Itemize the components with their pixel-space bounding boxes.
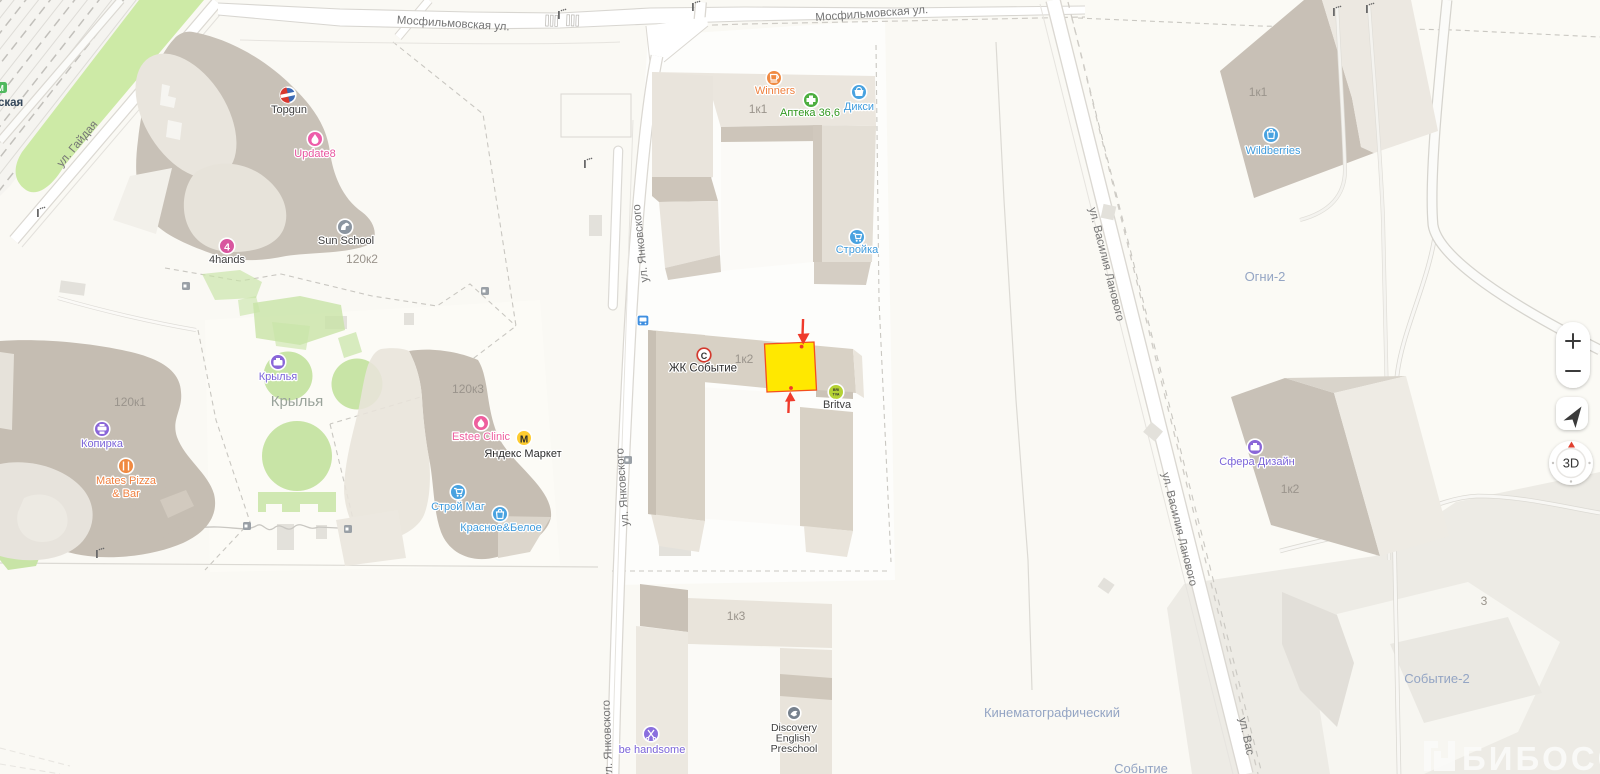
- svg-text:С: С: [701, 351, 708, 361]
- svg-text:Копирка: Копирка: [81, 438, 124, 450]
- svg-text:Кинематографический: Кинематографический: [984, 705, 1120, 720]
- svg-text:Строй Маг: Строй Маг: [431, 501, 485, 513]
- svg-text:3D: 3D: [1563, 456, 1580, 471]
- svg-text:Стройка: Стройка: [836, 244, 879, 256]
- svg-text:4: 4: [224, 242, 230, 254]
- svg-text:1к2: 1к2: [735, 352, 754, 366]
- svg-text:120к3: 120к3: [452, 382, 484, 396]
- svg-text:M: M: [0, 84, 4, 93]
- svg-text:Огни-2: Огни-2: [1245, 269, 1286, 284]
- svg-text:1к1: 1к1: [1249, 85, 1268, 99]
- svg-text:120к2: 120к2: [346, 252, 378, 266]
- svg-text:Britva: Britva: [823, 399, 852, 411]
- svg-text:Событие-2: Событие-2: [1404, 671, 1469, 686]
- svg-text:Winners: Winners: [755, 85, 796, 97]
- svg-text:1к1: 1к1: [749, 102, 768, 116]
- svg-text:1к2: 1к2: [1281, 482, 1300, 496]
- svg-text:Wildberries: Wildberries: [1245, 145, 1301, 157]
- svg-text:Sun School: Sun School: [318, 235, 374, 247]
- svg-text:Крылья: Крылья: [271, 393, 324, 410]
- svg-text:ская: ская: [0, 97, 23, 109]
- svg-text:Сфера Дизайн: Сфера Дизайн: [1219, 456, 1294, 468]
- svg-text:Крылья: Крылья: [259, 371, 298, 383]
- svg-text:Preschool: Preschool: [771, 743, 818, 755]
- svg-text:TVA: TVA: [833, 392, 840, 396]
- svg-text:3: 3: [1481, 594, 1488, 608]
- svg-text:4hands: 4hands: [209, 254, 246, 266]
- svg-text:Mates Pizza: Mates Pizza: [96, 475, 157, 487]
- svg-text:Аптека 36,6: Аптека 36,6: [780, 107, 840, 119]
- svg-text:Дикси: Дикси: [844, 101, 874, 113]
- svg-text:be handsome: be handsome: [619, 744, 686, 756]
- svg-text:& Bar: & Bar: [112, 488, 140, 500]
- svg-text:Update8: Update8: [294, 148, 336, 160]
- svg-text:1к3: 1к3: [727, 609, 746, 623]
- svg-text:Событие: Событие: [1114, 761, 1168, 774]
- svg-text:Яндекс Маркет: Яндекс Маркет: [484, 448, 561, 460]
- svg-text:BRI: BRI: [833, 388, 839, 392]
- svg-text:БИБОСС: БИБОСС: [1462, 740, 1600, 774]
- svg-text:M: M: [520, 435, 528, 446]
- svg-text:120к1: 120к1: [114, 395, 146, 409]
- svg-text:ЖК Событие: ЖК Событие: [669, 363, 737, 375]
- svg-text:Красное&Белое: Красное&Белое: [460, 522, 542, 534]
- svg-text:Topgun: Topgun: [271, 104, 307, 116]
- svg-text:Estee Clinic: Estee Clinic: [452, 431, 511, 443]
